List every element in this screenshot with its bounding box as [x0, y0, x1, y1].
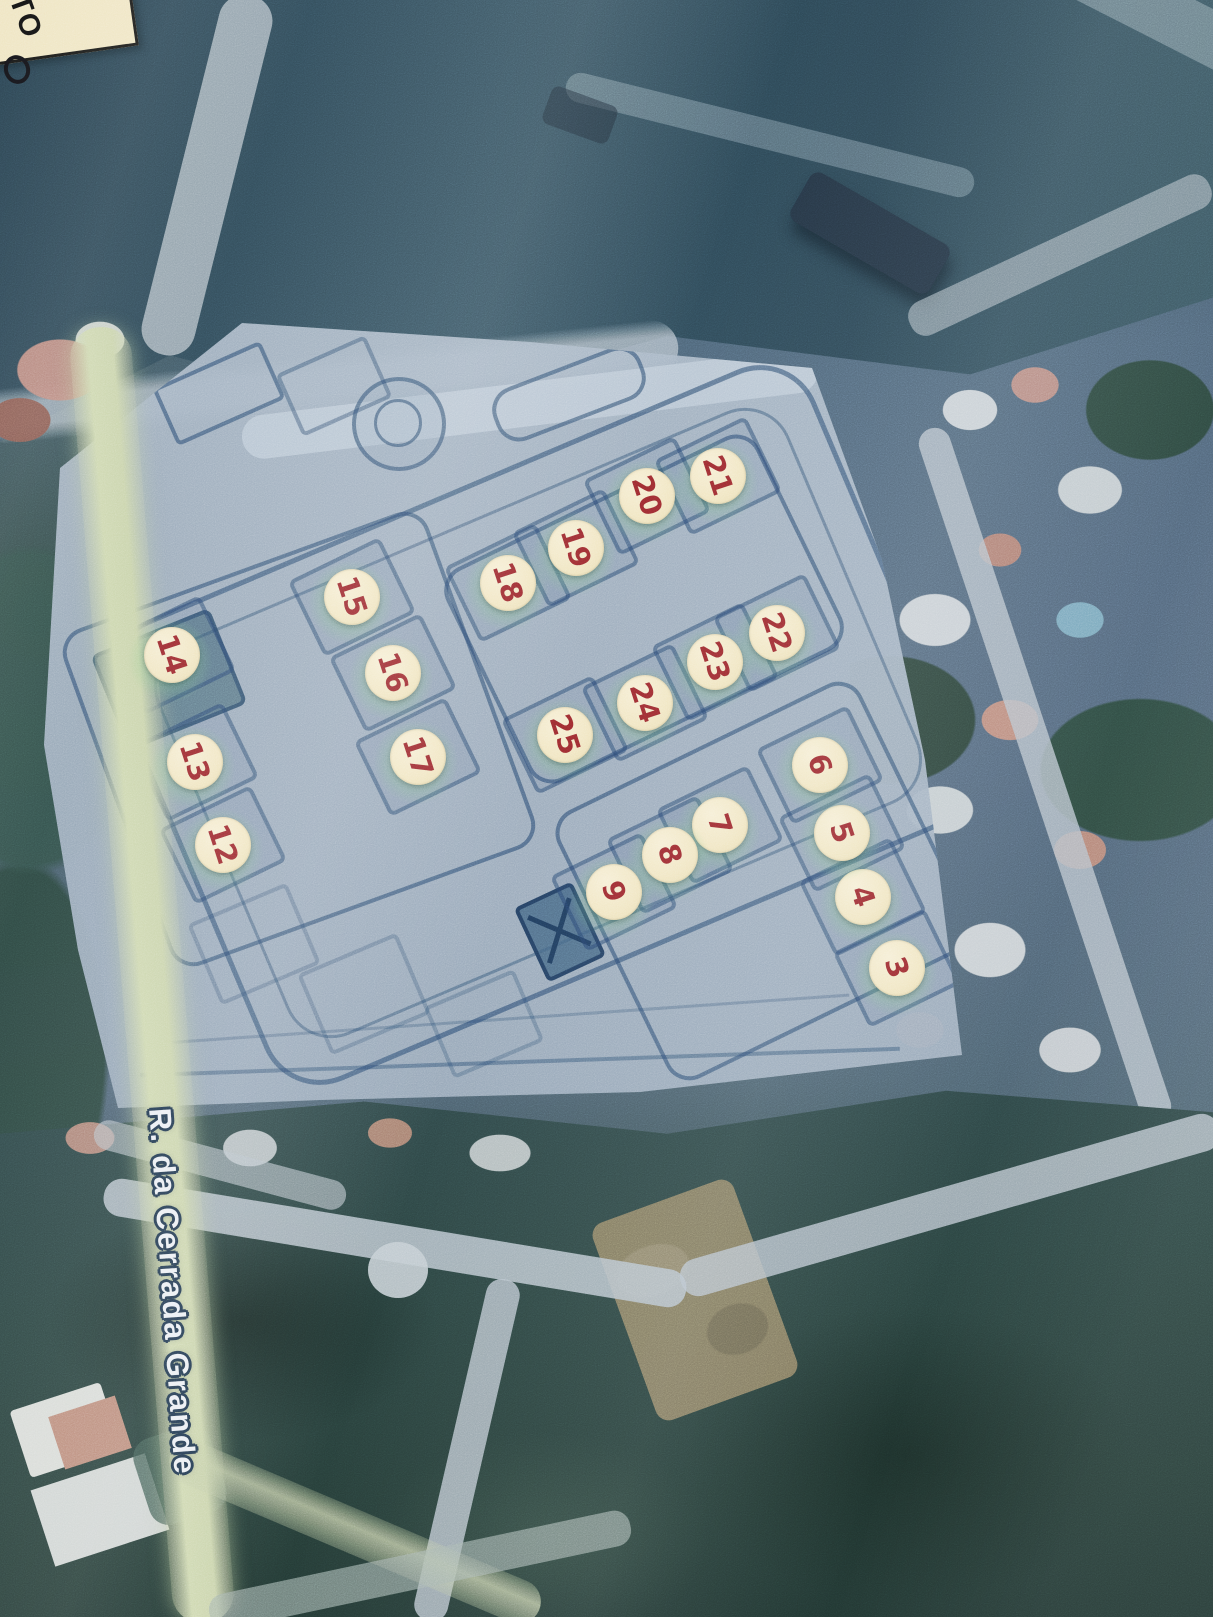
corner-label-text: TO	[2, 0, 49, 44]
lot-marker-19[interactable]: 19	[548, 520, 604, 576]
lot-marker-22[interactable]: 22	[749, 605, 805, 661]
aerial-lot-map-photo: R. da Cerrada Grande TO 3 4 5 6 7	[0, 0, 1213, 1617]
lot-marker-17[interactable]: 17	[390, 729, 446, 785]
lot-marker-13[interactable]: 13	[167, 734, 223, 790]
lot-marker-23[interactable]: 23	[687, 634, 743, 690]
lot-marker-21[interactable]: 21	[690, 448, 746, 504]
lot-marker-20[interactable]: 20	[619, 468, 675, 524]
lot-marker-24[interactable]: 24	[617, 675, 673, 731]
lot-marker-18[interactable]: 18	[480, 555, 536, 611]
street-label-wrap: R. da Cerrada Grande	[172, 1292, 541, 1328]
lot-marker-25[interactable]: 25	[537, 707, 593, 763]
lot-marker-15[interactable]: 15	[324, 569, 380, 625]
lot-marker-6[interactable]: 6	[792, 737, 848, 793]
lot-marker-9[interactable]: 9	[586, 864, 642, 920]
lot-marker-12[interactable]: 12	[195, 817, 251, 873]
lot-marker-3[interactable]: 3	[869, 940, 925, 996]
lot-marker-14[interactable]: 14	[144, 627, 200, 683]
lot-marker-16[interactable]: 16	[365, 645, 421, 701]
